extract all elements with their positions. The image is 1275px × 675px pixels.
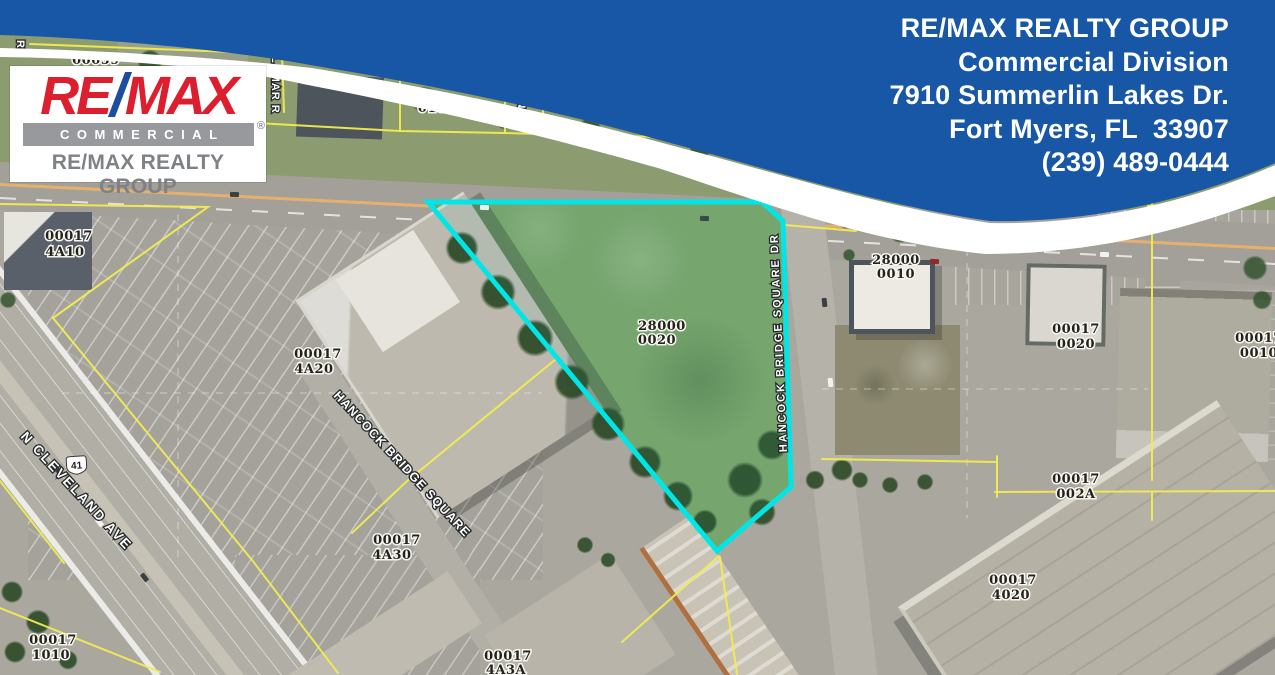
parcel-label: 000174A20 — [294, 347, 342, 377]
route-41-number: 41 — [71, 460, 83, 472]
address-city: Fort Myers, FL 33907 — [890, 113, 1229, 147]
commercial-bar: COMMERCIAL ® — [23, 123, 254, 146]
parcel-label: 000174A3A — [484, 649, 532, 675]
parcel-label: 00017002A — [1052, 472, 1100, 502]
subject-parcel-highlight — [428, 202, 791, 551]
remax-max: MAX — [125, 66, 236, 126]
remax-re: RE — [40, 66, 109, 126]
company-name: RE/MAX REALTY GROUP — [890, 12, 1229, 46]
parcel-label: 000170010 — [1235, 331, 1275, 361]
street-label: HANCOCK BRIDGE SQUARE — [331, 388, 474, 539]
street-label: N CLEVELAND AVE — [18, 429, 135, 553]
parcel-label: 000170020 — [1052, 322, 1100, 352]
parcel-label: 000174A30 — [372, 533, 420, 563]
registered-mark: ® — [249, 115, 265, 138]
route-41-shield: 41 — [66, 456, 87, 475]
phone-number: (239) 489-0444 — [890, 146, 1229, 180]
remax-logo-card: RE/MAX COMMERCIAL ® RE/MAX REALTY GROUP — [10, 66, 266, 182]
parcel-label: 000174A10 — [45, 229, 93, 260]
remax-slash: / — [109, 62, 125, 129]
division: Commercial Division — [890, 46, 1229, 80]
logo-subtitle: RE/MAX REALTY GROUP — [10, 151, 266, 199]
flyer-page: RD LAMAR R PINE N CLEVELAND AVE HANCOCK … — [0, 0, 1275, 675]
commercial-label: COMMERCIAL — [60, 127, 225, 142]
address-street: 7910 Summerlin Lakes Dr. — [890, 79, 1229, 113]
parcel-label: 000174020 — [989, 573, 1037, 603]
parcel-label: 000171010 — [29, 633, 77, 663]
parcel-label: 280000010 — [872, 253, 920, 282]
contact-block: RE/MAX REALTY GROUP Commercial Division … — [890, 12, 1229, 180]
remax-wordmark: RE/MAX — [10, 67, 266, 123]
